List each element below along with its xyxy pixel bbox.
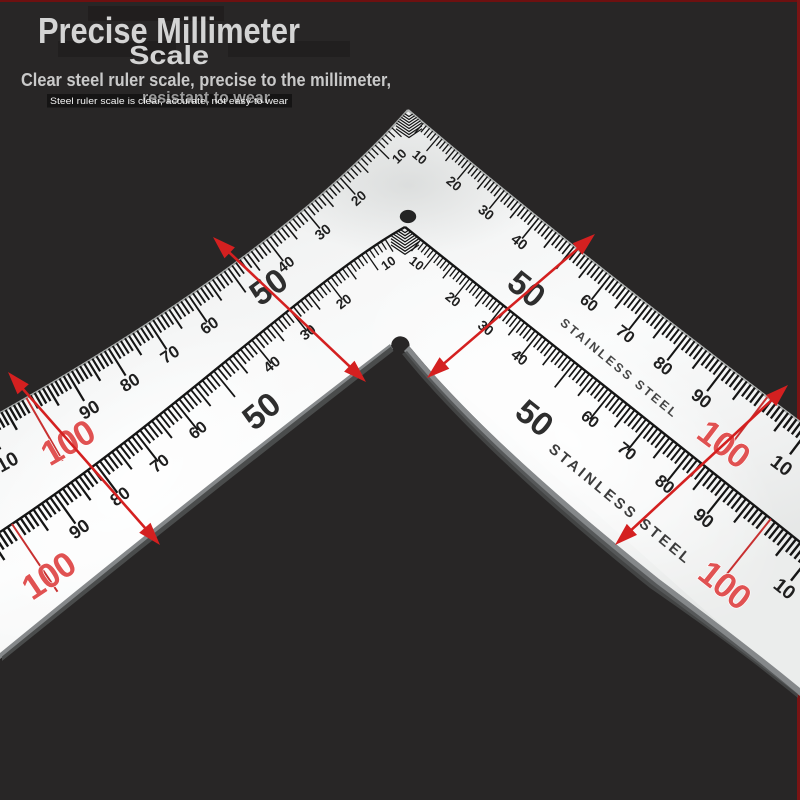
svg-text:Steel ruler scale is clear, ac: Steel ruler scale is clear, accurate, no… xyxy=(50,96,288,107)
svg-text:Clear steel ruler scale, preci: Clear steel ruler scale, precise to the … xyxy=(21,70,391,90)
svg-text:Scale: Scale xyxy=(129,40,209,70)
